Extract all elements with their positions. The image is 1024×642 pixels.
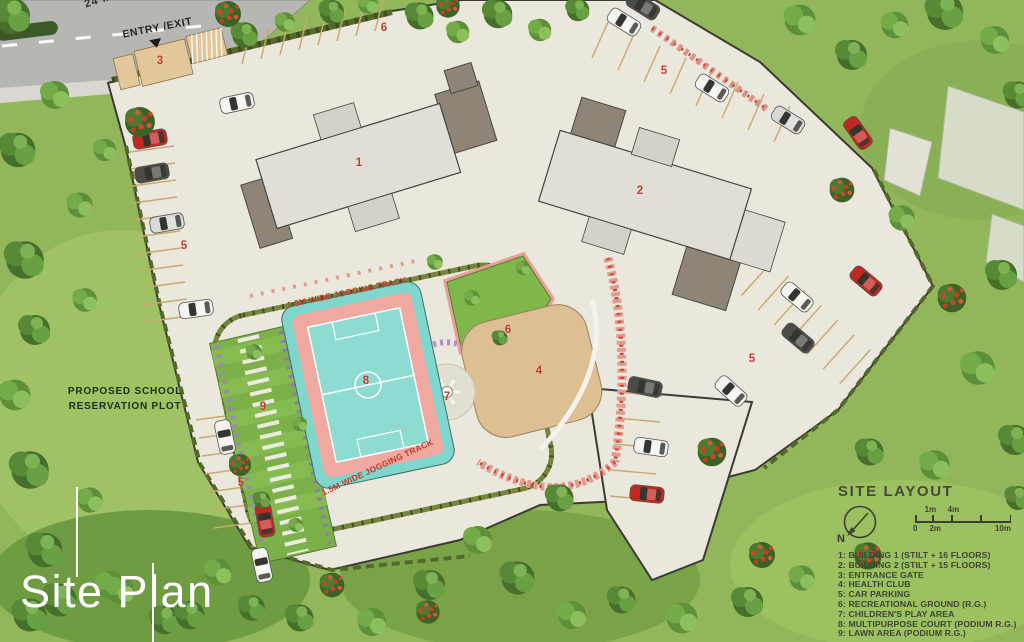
legend-title: SITE LAYOUT xyxy=(838,483,1024,500)
area-marker-5: 5 xyxy=(181,240,187,252)
legend-item: 9: LAWN AREA (PODIUM R.G.) xyxy=(838,629,1024,639)
area-marker-5: 5 xyxy=(661,65,667,77)
scale-label: 4m xyxy=(948,505,960,514)
scale-bar: 1m 4m 0 2m 10m xyxy=(915,505,1011,534)
area-marker-8: 8 xyxy=(363,375,369,387)
area-marker-6: 6 xyxy=(505,324,511,336)
scale-line xyxy=(915,515,1011,523)
north-label: N xyxy=(837,533,845,545)
area-marker-3: 3 xyxy=(157,55,163,67)
area-marker-7: 7 xyxy=(444,391,450,403)
site-plan-rendering: 24 M. ENTRY /EXIT PROPOSED SCHOOL RESERV… xyxy=(0,0,1024,642)
area-marker-5: 5 xyxy=(238,477,244,489)
area-marker-4: 4 xyxy=(536,365,542,377)
area-marker-2: 2 xyxy=(637,185,643,197)
scale-label: 0 xyxy=(913,524,917,533)
area-marker-9: 9 xyxy=(260,401,266,413)
title-decoration-line-top xyxy=(76,487,78,577)
compass: N xyxy=(838,502,884,550)
area-marker-5: 5 xyxy=(749,353,755,365)
school-plot-label: PROPOSED SCHOOL RESERVATION PLOT xyxy=(46,384,204,414)
scale-label: 1m xyxy=(925,505,937,514)
site-plan-title: Site Plan xyxy=(20,566,214,618)
area-marker-6: 6 xyxy=(381,22,387,34)
legend-items: 1: BUILDING 1 (STILT + 16 FLOORS)2: BUIL… xyxy=(838,551,1024,639)
site-layout-legend: SITE LAYOUT N 1m 4m 0 2m 10m 1: BUILDING… xyxy=(838,483,1024,500)
area-marker-1: 1 xyxy=(356,157,362,169)
scale-label: 10m xyxy=(995,524,1011,533)
scale-label: 2m xyxy=(929,524,941,533)
